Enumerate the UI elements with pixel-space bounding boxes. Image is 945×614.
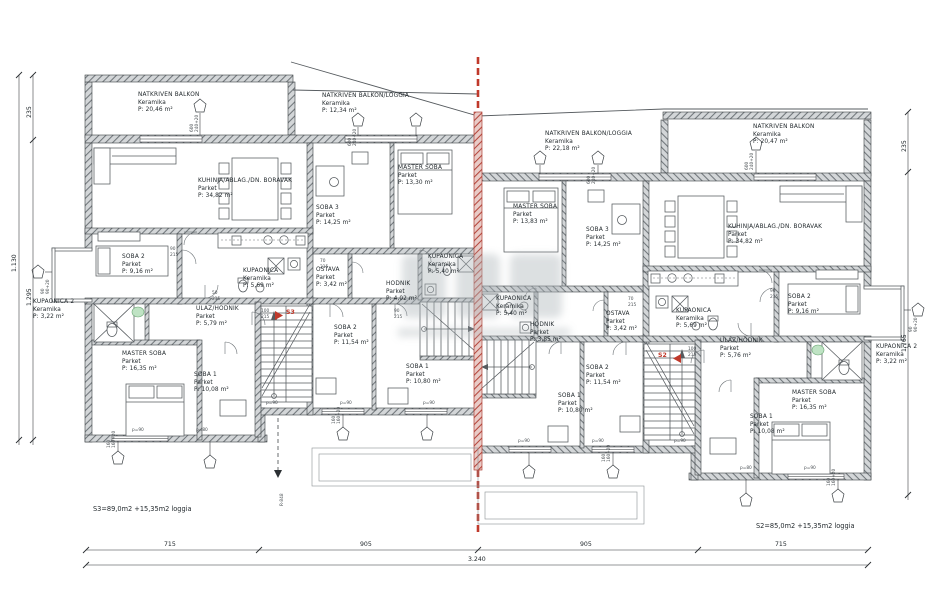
svg-text:215: 215 — [212, 296, 220, 302]
room-label-ostava-left: OSTAVAParketP: 3,42 m² — [316, 267, 347, 290]
svg-text:90+20: 90+20 — [45, 279, 51, 294]
room-label-loggia-left: NATKRIVEN BALKON/LOGGIAKeramikaP: 12,34 … — [322, 93, 409, 116]
room-label-soba1-right: SOBA 1ParketP: 10,08 m² — [750, 414, 785, 437]
svg-text:p=90: p=90 — [266, 400, 278, 406]
svg-text:p=90: p=90 — [423, 400, 435, 406]
room-label-soba2b-left: SOBA 2ParketP: 11,54 m² — [334, 325, 369, 348]
svg-text:p=90: p=90 — [340, 400, 352, 406]
room-label-kupaonica-left: KUPAONICAKeramikaP: 5,69 m² — [243, 268, 278, 291]
svg-text:215: 215 — [688, 352, 696, 358]
room-label-master-upper-left: MASTER SOBAParketP: 13,30 m² — [398, 165, 442, 188]
svg-text:50: 50 — [212, 290, 218, 296]
room-label-hodnik-left: HODNIKParketP: 4,02 m² — [386, 281, 417, 304]
svg-text:160+20: 160+20 — [111, 430, 117, 448]
room-label-loggia-right: NATKRIVEN BALKON/LOGGIAKeramikaP: 22,18 … — [545, 131, 632, 154]
room-label-balkon-left: NATKRIVEN BALKONKeramikaP: 20,46 m² — [138, 92, 200, 115]
room-label-master-upper-right: MASTER SOBAParketP: 13,83 m² — [513, 204, 557, 227]
unit-summary-s3: S3=89,0m2 +15,35m2 loggia — [93, 505, 192, 513]
room-label-kupaonica-right: KUPAONICAKeramikaP: 5,69 m² — [676, 308, 711, 331]
svg-text:240+20: 240+20 — [591, 166, 597, 184]
room-label-soba3-right: SOBA 3ParketP: 14,25 m² — [586, 227, 621, 250]
unit-summary-s2: S2=85,0m2 +15,35m2 loggia — [756, 522, 855, 530]
svg-text:100: 100 — [261, 308, 269, 314]
svg-text:240+20: 240+20 — [352, 128, 358, 146]
room-label-ostava-right: OSTAVAParketP: 3,42 m² — [606, 311, 637, 334]
svg-text:160+20: 160+20 — [606, 444, 612, 462]
svg-text:1.130: 1.130 — [11, 254, 18, 272]
room-label-soba1-left: SOBA 1ParketP: 10,08 m² — [194, 372, 229, 395]
room-label-ulaz-right: ULAZ/HODNIKParketP: 5,76 m² — [720, 338, 763, 361]
svg-text:p=90: p=90 — [674, 438, 686, 444]
svg-text:235: 235 — [901, 140, 908, 152]
svg-text:235: 235 — [26, 106, 33, 118]
room-label-master-lower-right: MASTER SOBAParketP: 16,35 m² — [792, 390, 836, 413]
room-label-soba1b-right: SOBA 1ParketP: 10,80 m² — [558, 393, 593, 416]
section-marker: R-848 — [274, 418, 285, 506]
svg-text:90: 90 — [770, 288, 776, 294]
svg-text:905: 905 — [580, 541, 592, 548]
room-label-kupaonicab-left: KUPAONICAKeramikaP: 5,40 m² — [428, 254, 463, 277]
svg-text:160+20: 160+20 — [831, 468, 837, 486]
stair-label-s3: S3 — [286, 309, 295, 316]
room-label-soba2b-right: SOBA 2ParketP: 11,54 m² — [586, 365, 621, 388]
svg-text:1.295: 1.295 — [26, 288, 33, 306]
room-label-kupaonicab-right: KUPAONICAKeramikaP: 5,40 m² — [496, 296, 531, 319]
svg-text:715: 715 — [164, 541, 176, 548]
svg-text:R-848: R-848 — [279, 493, 285, 506]
svg-text:90: 90 — [170, 246, 176, 252]
svg-text:215: 215 — [170, 252, 178, 258]
svg-text:p=80: p=80 — [740, 465, 752, 471]
room-label-hodnik-right: HODNIKParketP: 3,85 m² — [530, 322, 561, 345]
svg-text:3.240: 3.240 — [468, 556, 486, 563]
room-label-master-lower-left: MASTER SOBAParketP: 16,35 m² — [122, 351, 166, 374]
svg-text:p=80: p=80 — [196, 427, 208, 433]
floor-plan-canvas: R-848 715 905 905 715 3.240 1.130 235 1.… — [0, 0, 945, 614]
room-label-ulaz-left: ULAZ/HODNIKParketP: 5,79 m² — [196, 306, 239, 329]
svg-text:70: 70 — [320, 258, 326, 264]
svg-text:215: 215 — [770, 294, 778, 300]
room-label-soba1b-left: SOBA 1ParketP: 10,80 m² — [406, 364, 441, 387]
svg-text:p=90: p=90 — [592, 438, 604, 444]
svg-text:215: 215 — [261, 314, 269, 320]
svg-text:240+20: 240+20 — [749, 152, 755, 170]
svg-text:905: 905 — [360, 541, 372, 548]
room-label-balkon-right: NATKRIVEN BALKONKeramikaP: 20,47 m² — [753, 124, 815, 147]
svg-text:215: 215 — [628, 302, 636, 308]
stair-label-s2: S2 — [658, 352, 667, 359]
svg-text:160+20: 160+20 — [336, 406, 342, 424]
room-label-kupaonica2-left: KUPAONICA 2KeramikaP: 3,22 m² — [33, 299, 74, 322]
terrace-outline — [312, 448, 644, 524]
svg-text:p=90: p=90 — [518, 438, 530, 444]
room-label-kupaonica2-right: KUPAONICA 2KeramikaP: 3,22 m² — [876, 344, 917, 367]
svg-text:p=90: p=90 — [804, 465, 816, 471]
room-label-soba3-left: SOBA 3ParketP: 14,25 m² — [316, 205, 351, 228]
svg-text:90+20: 90+20 — [913, 317, 919, 332]
room-label-kitchen-left: KUHINJA/ABLAG./DN. BORAVAKParketP: 34,82… — [198, 178, 292, 201]
room-label-soba2-right: SOBA 2ParketP: 9,16 m² — [788, 294, 819, 317]
svg-text:70: 70 — [628, 296, 634, 302]
room-label-soba2-left: SOBA 2ParketP: 9,16 m² — [122, 254, 153, 277]
svg-text:100: 100 — [688, 346, 696, 352]
svg-text:715: 715 — [775, 541, 787, 548]
svg-text:p=90: p=90 — [132, 427, 144, 433]
room-label-kitchen-right: KUHINJA/ABLAG./DN. BORAVAKParketP: 34,82… — [728, 224, 822, 247]
svg-text:240+20: 240+20 — [194, 114, 200, 132]
